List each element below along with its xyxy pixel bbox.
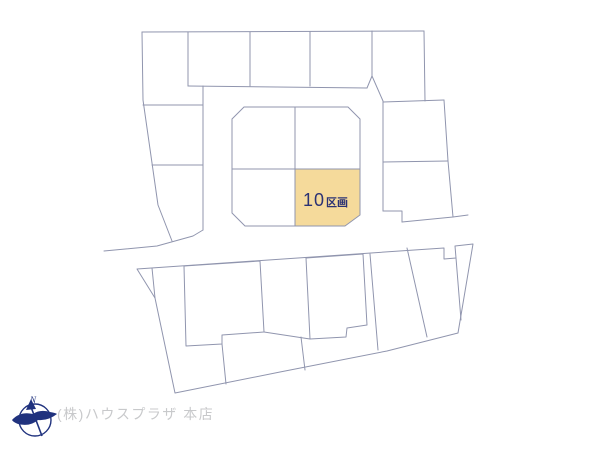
compass-icon: N: [12, 395, 57, 436]
lot-unit-text: 区画: [326, 196, 348, 209]
road-lines: [104, 215, 468, 251]
plot-map-svg: 10 区画 N: [0, 0, 600, 450]
company-name: (株)ハウスプラザ 本店: [57, 404, 214, 424]
compass-north-text: N: [29, 395, 37, 405]
building-footprints: [184, 254, 367, 346]
right-parcels-lines: [383, 100, 453, 222]
plot-map-page: 10 区画 N (株)ハウスプラザ 本店: [0, 0, 600, 450]
lower-parcels-lines: [137, 244, 473, 393]
lot-number-text: 10: [303, 190, 325, 210]
parcel-linework: [104, 31, 473, 393]
